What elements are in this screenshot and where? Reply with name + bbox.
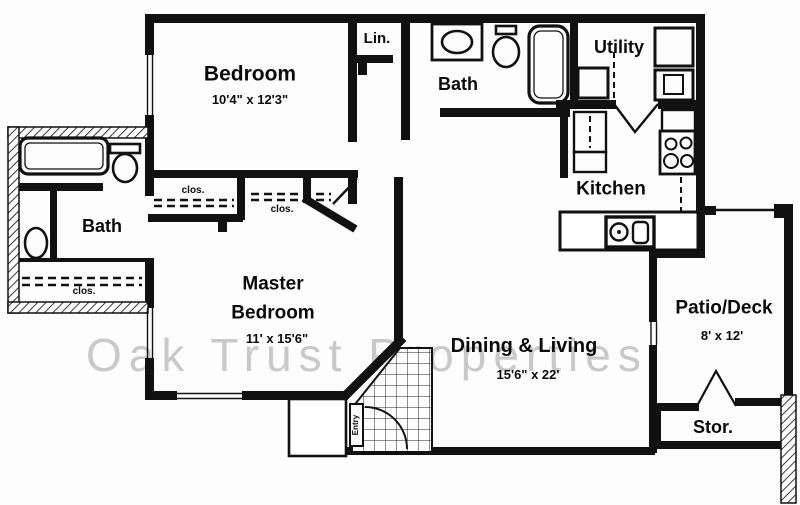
bath-closet-label: clos.: [73, 286, 96, 298]
bedroom-window: [148, 55, 153, 115]
dining-dims-label: 15'6" x 22': [497, 367, 560, 383]
kitchen-cabinet-lower: [574, 152, 606, 172]
floor-plan: Oak Trust Properties: [0, 0, 800, 505]
linen-label: Lin.: [364, 30, 391, 48]
toilet-top: [493, 26, 519, 67]
kitchen-sink: [606, 217, 654, 247]
master-window-bottom: [177, 394, 242, 399]
water-heater: [578, 68, 608, 98]
bedroom-closet-label: clos.: [182, 185, 205, 197]
washer: [655, 28, 693, 66]
dryer: [655, 70, 693, 100]
dining-living-label: Dining & Living: [451, 334, 598, 358]
utility-label: Utility: [594, 37, 644, 59]
master-bedroom-label: Master Bedroom: [213, 270, 333, 329]
kitchen-counter-right: [662, 110, 695, 131]
vanity-sink-top: [432, 24, 482, 60]
bedroom-label: Bedroom: [204, 61, 296, 86]
bath-top-label: Bath: [438, 74, 478, 96]
patio-door-window: [651, 322, 657, 345]
patio-dims-label: 8' x 12': [701, 328, 743, 344]
bath-left-label: Bath: [82, 216, 122, 238]
bathtub-left: [20, 138, 108, 174]
sink-left: [25, 228, 47, 258]
entry-stoop: [289, 399, 346, 456]
master-dims-label: 11' x 15'6": [246, 331, 308, 347]
bathtub-top: [529, 26, 568, 103]
master-closet-label: clos.: [271, 204, 294, 216]
floor-plan-drawing: [0, 0, 800, 505]
entry-label: Entry: [351, 415, 361, 435]
utility-door-swing: [614, 104, 658, 132]
storage-door-swing: [697, 371, 736, 406]
bedroom-dims-label: 10'4" x 12'3": [212, 92, 288, 108]
kitchen-label: Kitchen: [576, 179, 646, 202]
patio-deck-label: Patio/Deck: [675, 298, 772, 321]
storage-label: Stor.: [693, 417, 733, 439]
toilet-left: [110, 144, 140, 182]
master-window-left: [148, 308, 153, 358]
stove: [660, 131, 695, 174]
